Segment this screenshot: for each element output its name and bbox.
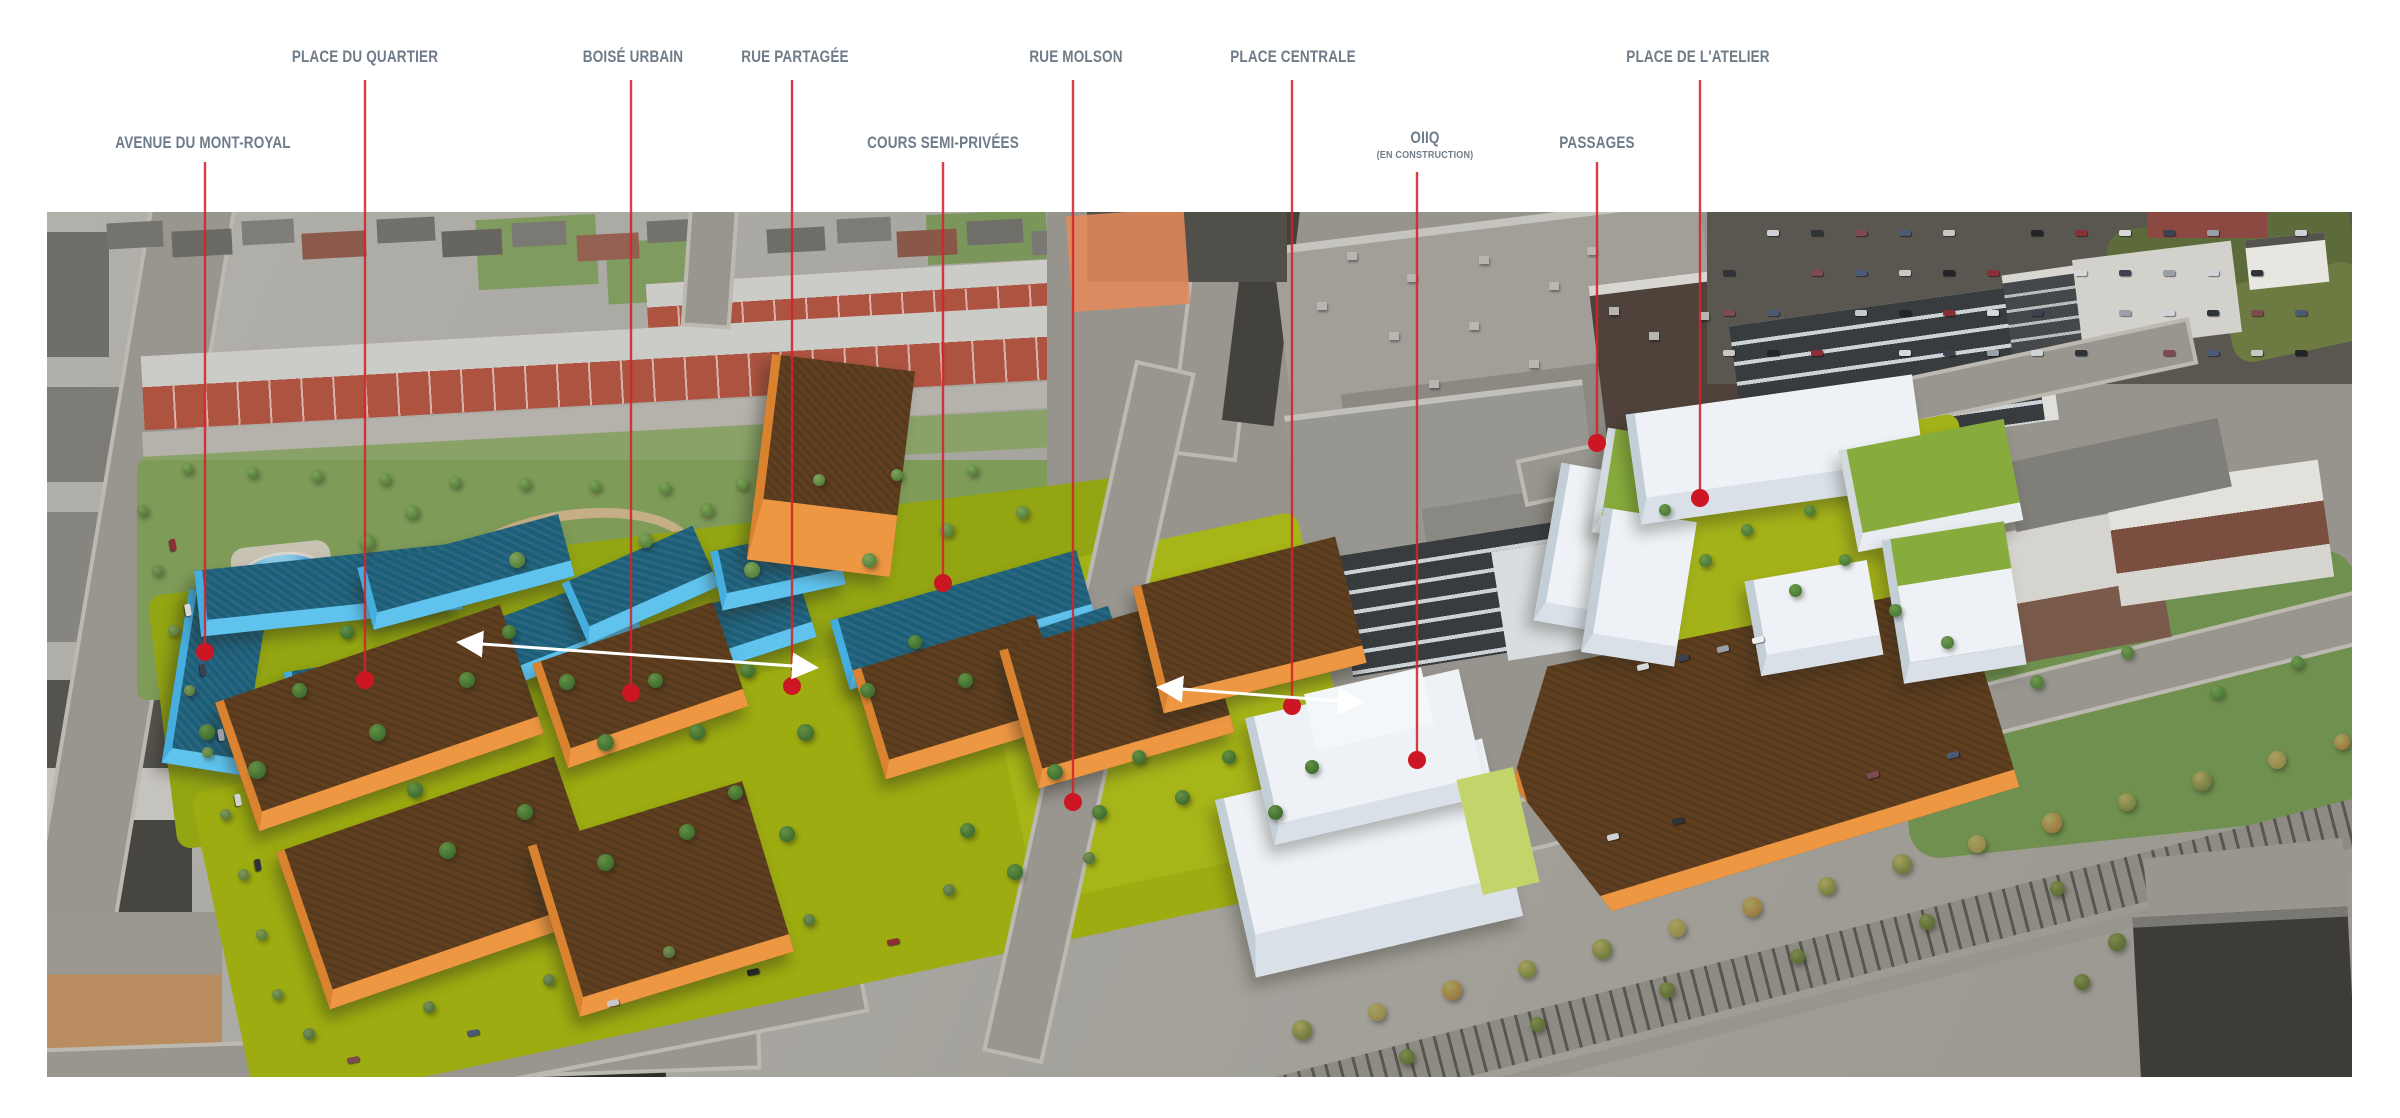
rooftop-unit [1587,247,1597,255]
tree [860,683,875,698]
tree [459,672,475,688]
car [1723,310,1735,316]
tree [502,625,516,639]
detached-roof [241,219,294,246]
tree [940,523,954,537]
car [2207,310,2219,316]
car [2075,230,2087,236]
tree [423,1001,435,1013]
tree [862,553,877,568]
rooftop-unit [1469,322,1479,330]
tree [1592,939,1612,959]
tree [311,470,323,482]
small-white-house [2245,232,2330,290]
tree [1530,1017,1545,1032]
rooftop-unit [1389,332,1399,340]
car [1943,350,1955,356]
tree [663,946,675,958]
tree [543,974,555,986]
tree [700,503,714,517]
car [1767,230,1779,236]
rooftop-unit [1479,256,1489,264]
tree [405,505,419,519]
tree [589,480,601,492]
orange-massing-tower [747,354,915,577]
car [2207,230,2219,236]
tree [2030,675,2044,689]
tree [1659,504,1671,516]
car [1987,270,1999,276]
tree [1092,805,1107,820]
tree [1790,949,1805,964]
tree [1919,914,1935,930]
callout-label-place-de-l-atelier: PLACE DE L'ATELIER [1626,48,1769,67]
car [1855,310,1867,316]
aerial-photo [47,212,2352,1077]
orange-hatched-building [1066,212,1190,312]
tree [1047,764,1063,780]
tree [2192,771,2212,791]
car [2295,310,2307,316]
tree [943,884,955,896]
callout-label-cours-semi-privees: COURS SEMI-PRIVÉES [867,134,1019,153]
car [2075,350,2087,356]
rooftop-unit [1699,312,1709,320]
tree [152,565,163,576]
car [2163,270,2175,276]
tree [509,552,525,568]
detached-roof [171,228,232,257]
tree [2050,881,2065,896]
tree [137,505,148,516]
tree [2334,734,2350,750]
tree [1399,1049,1415,1065]
car [2295,350,2307,356]
tree [517,804,533,820]
car [2163,230,2175,236]
car [1767,350,1779,356]
detached-roof [376,216,435,243]
tree [1668,919,1686,937]
car [1943,230,1955,236]
tree [960,823,975,838]
tree [638,533,653,548]
car [1767,310,1779,316]
tree [340,625,354,639]
tree [1083,852,1095,864]
detached-roof [896,228,957,257]
tree [292,683,307,698]
car [2163,310,2175,316]
tree [559,674,575,690]
callout-label-boise-urbain: BOISÉ URBAIN [583,48,683,67]
detached-roof [301,230,366,259]
callout-label-avenue-du-mont-royal: AVENUE DU MONT-ROYAL [115,134,290,153]
car [1899,270,1911,276]
callout-label-place-centrale: PLACE CENTRALE [1230,48,1356,67]
detached-roof [766,226,825,253]
tree [958,673,973,688]
rooftop-unit [1649,332,1659,340]
car [2163,350,2175,356]
tree [182,463,193,474]
tree [1305,760,1319,774]
tree [648,673,663,688]
callout-label-passages: PASSAGES [1559,134,1635,153]
tree [256,929,267,940]
tree [779,826,795,842]
detached-roof [441,228,502,257]
tree [220,809,231,820]
tree [199,724,215,740]
dark-building-corner [2133,906,2352,1077]
rooftop-unit [1317,302,1327,310]
rooftop-unit [1347,252,1357,260]
car [2251,350,2263,356]
tree [597,734,614,751]
car [2031,230,2043,236]
tree [597,854,614,871]
tree [519,478,531,490]
tree [359,534,375,550]
car [1811,270,1823,276]
detached-roof [106,221,163,250]
tree [1518,960,1536,978]
tree [1889,604,1902,617]
tree [1892,854,1912,874]
tree [728,785,743,800]
tree [1968,835,1986,853]
tree [891,469,903,481]
tree [2118,793,2136,811]
tree [247,467,258,478]
tree [248,761,266,779]
tree [1007,864,1023,880]
tree [168,625,179,636]
tree [2121,646,2134,659]
cross-street [685,212,735,325]
tree [744,562,760,578]
car [2075,270,2087,276]
tree [1818,877,1836,895]
tree [2108,933,2126,951]
car [2119,230,2131,236]
tree [184,685,195,696]
tree [1659,982,1675,998]
callout-label-oiiq: OIIQ [1410,129,1439,148]
detached-roof [836,217,891,244]
car [1899,350,1911,356]
rooftop-unit [1529,360,1539,368]
tree [1941,636,1954,649]
tree [1292,1020,1312,1040]
rooftop-unit [1429,380,1439,388]
car [1899,230,1911,236]
detached-roof [511,221,566,248]
tree [803,914,815,926]
car [2119,310,2131,316]
car [2031,310,2043,316]
annotated-aerial-masterplan: PLACE DU QUARTIERBOISÉ URBAINRUE PARTAGÉ… [0,0,2400,1118]
tree [679,824,695,840]
tree [1442,980,1462,1000]
car [2031,350,2043,356]
tree [689,724,705,740]
tree [1222,750,1236,764]
car [1987,310,1999,316]
tree [1742,897,1762,917]
tree [202,747,213,758]
car [2251,310,2263,316]
tree [797,724,814,741]
detached-roof [966,219,1023,246]
car [1811,350,1823,356]
detached-roof [576,232,639,261]
callout-label-rue-partagee: RUE PARTAGÉE [741,48,848,67]
car [1723,270,1735,276]
rooftop-unit [1407,274,1417,282]
tree [2042,813,2062,833]
tree [439,842,456,859]
car [1811,230,1823,236]
tree [1789,584,1802,597]
tree [1368,1003,1386,1021]
tree [1016,506,1029,519]
tree [2210,685,2224,699]
tree [1175,790,1190,805]
rooftop-unit [1549,282,1559,290]
car [1723,350,1735,356]
car [1987,350,1999,356]
tree [908,635,922,649]
callout-sublabel-oiiq: (EN CONSTRUCTION) [1377,149,1474,161]
tree [1839,554,1851,566]
tree [2074,974,2090,990]
tree [2291,656,2304,669]
tree [740,663,755,678]
atelier-massing [1881,521,2026,684]
car [1943,310,1955,316]
tree [407,782,423,798]
tree [1268,805,1283,820]
car [2207,350,2219,356]
tree [967,465,978,476]
car [1855,230,1867,236]
car [1855,270,1867,276]
tree [1699,554,1712,567]
tree [2268,751,2286,769]
tree [449,476,461,488]
tree [1741,524,1753,536]
tree [303,1028,315,1040]
car [2295,230,2307,236]
rooftop-unit [1609,307,1619,315]
car [1943,270,1955,276]
tree [272,989,283,1000]
car [1899,310,1911,316]
tree [736,478,748,490]
car [2119,270,2131,276]
car [2207,270,2219,276]
tree [659,482,671,494]
tree [369,724,386,741]
callout-label-rue-molson: RUE MOLSON [1029,48,1122,67]
car [2251,270,2263,276]
tree [379,473,391,485]
tree [238,869,249,880]
tree [813,474,825,486]
tree [1132,750,1146,764]
industrial-block [47,387,119,482]
tree [1804,505,1815,516]
callout-label-place-du-quartier: PLACE DU QUARTIER [292,48,438,67]
